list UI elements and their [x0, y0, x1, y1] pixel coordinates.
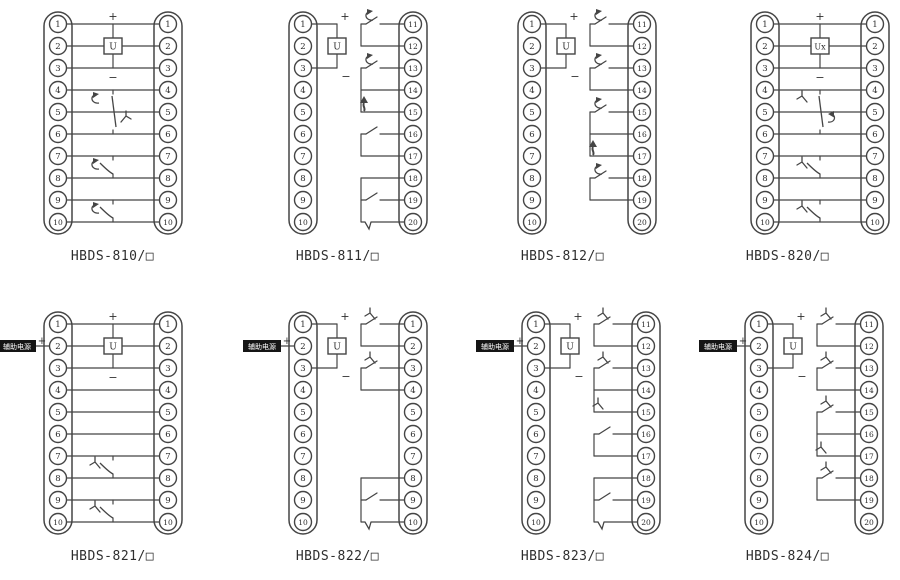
terminal-number: 5: [756, 408, 761, 418]
contact-blade: [822, 361, 833, 368]
reset-arrow-icon: [596, 9, 602, 15]
terminal-number: 16: [408, 130, 418, 139]
minus-sign: −: [341, 70, 350, 83]
terminal-number: 1: [165, 20, 170, 30]
terminal-number: 4: [410, 386, 415, 396]
terminal-number: 19: [408, 196, 418, 205]
terminal-number: 8: [872, 174, 877, 184]
terminal-number: 1: [756, 320, 761, 330]
plus-sign: +: [38, 336, 46, 347]
terminal-number: 20: [637, 218, 647, 227]
terminal-number: 6: [165, 130, 170, 140]
contact-blade: [366, 193, 377, 200]
reset-arrow-icon: [596, 163, 602, 169]
terminal-number: 8: [410, 474, 415, 484]
terminal-number: 7: [533, 452, 538, 462]
fork-icon: [821, 308, 831, 319]
terminal-number: 4: [756, 386, 761, 396]
minus-sign: −: [570, 70, 579, 83]
reset-arrow-icon: [93, 158, 99, 164]
diagram-title: HBDS-820/□: [675, 249, 900, 264]
terminal-number: 2: [55, 342, 60, 352]
aux-label-text: 辅助电源: [3, 342, 31, 351]
fork-icon: [821, 396, 831, 407]
terminal-number: 10: [527, 218, 537, 227]
terminal-number: 6: [300, 130, 305, 140]
plus-sign: +: [796, 310, 805, 323]
terminal-number: 9: [529, 196, 534, 206]
terminal-number: 1: [872, 20, 877, 30]
terminal-number: 13: [641, 364, 651, 373]
terminal-number: 14: [637, 86, 647, 95]
terminal-number: 7: [762, 152, 767, 162]
terminal-number: 2: [872, 42, 877, 52]
terminal-number: 8: [762, 174, 767, 184]
diagram-hbds-820: Ux+−1122334455667788991010 HBDS-820/□: [675, 0, 900, 290]
terminal-number: 17: [641, 452, 651, 461]
coil-label: U: [109, 343, 117, 353]
fork-icon: [797, 201, 807, 212]
terminal-number: 9: [533, 496, 538, 506]
fork-icon: [598, 352, 608, 363]
nc-hook-blade: [594, 522, 604, 529]
terminal-number: 20: [408, 218, 418, 227]
terminal-number: 5: [300, 108, 305, 118]
coil-label: U: [562, 43, 570, 53]
reset-arrow-icon: [93, 92, 99, 98]
terminal-number: 6: [55, 130, 60, 140]
terminal-number: 11: [408, 20, 418, 29]
coil-label: Ux: [814, 43, 826, 52]
terminal-number: 16: [641, 430, 651, 439]
terminal-number: 12: [641, 342, 651, 351]
terminal-number: 7: [410, 452, 415, 462]
terminal-number: 2: [165, 42, 170, 52]
terminal-number: 11: [637, 20, 647, 29]
minus-sign: −: [574, 370, 583, 383]
contact-blade: [599, 317, 610, 324]
terminal-number: 13: [637, 64, 647, 73]
terminal-number: 3: [300, 364, 305, 374]
terminal-number: 2: [529, 42, 534, 52]
terminal-number: 10: [754, 518, 764, 527]
terminal-number: 3: [300, 64, 305, 74]
terminal-number: 9: [165, 496, 170, 506]
diagram-title: HBDS-821/□: [0, 549, 225, 564]
diagram-hbds-820-svg: Ux+−1122334455667788991010: [675, 6, 900, 246]
diagram-hbds-822: U+−1122334455667788991010辅助电源+ HBDS-822/…: [225, 290, 450, 580]
plus-sign: +: [739, 336, 747, 347]
fork-icon: [90, 457, 100, 468]
fork-icon: [121, 111, 131, 122]
terminal-number: 11: [864, 320, 874, 329]
nc-hook-blade: [361, 522, 371, 529]
terminal-number: 19: [641, 496, 651, 505]
terminal-number: 18: [637, 174, 647, 183]
minus-sign: −: [341, 370, 350, 383]
terminal-number: 14: [408, 86, 418, 95]
terminal-number: 2: [300, 42, 305, 52]
reset-arrow-icon: [367, 9, 373, 15]
terminal-number: 12: [864, 342, 874, 351]
minus-sign: −: [797, 370, 806, 383]
aux-label-text: 辅助电源: [704, 342, 732, 351]
terminal-number: 9: [872, 196, 877, 206]
terminal-number: 4: [55, 86, 60, 96]
reset-arrow-icon: [596, 53, 602, 59]
terminal-number: 2: [533, 342, 538, 352]
terminal-number: 5: [529, 108, 534, 118]
contact-blade: [599, 493, 610, 500]
terminal-number: 10: [408, 518, 418, 527]
terminal-number: 4: [529, 86, 534, 96]
contact-blade: [366, 493, 377, 500]
fork-icon: [821, 462, 831, 473]
contact-blade: [599, 427, 610, 434]
terminal-number: 1: [529, 20, 534, 30]
terminal-number: 9: [762, 196, 767, 206]
diagram-hbds-811-svg: U+−1112123134145156167178189191020: [225, 6, 450, 246]
plus-sign: +: [340, 310, 349, 323]
diagram-hbds-821-svg: U+−1122334455667788991010辅助电源+: [0, 306, 225, 546]
diagram-hbds-810-svg: U+−1122334455667788991010: [0, 6, 225, 246]
terminal-number: 5: [165, 408, 170, 418]
terminal-number: 10: [53, 218, 63, 227]
terminal-number: 7: [300, 152, 305, 162]
reset-arrow-icon: [596, 97, 602, 103]
terminal-number: 6: [300, 430, 305, 440]
aux-label-text: 辅助电源: [481, 342, 509, 351]
terminal-number: 10: [163, 518, 173, 527]
coil-label: U: [333, 343, 341, 353]
terminal-number: 7: [165, 452, 170, 462]
terminal-number: 19: [637, 196, 647, 205]
minus-sign: −: [815, 71, 824, 84]
diagram-hbds-824: U+−1112123134145156167178189191020辅助电源+ …: [675, 290, 900, 580]
terminal-number: 6: [756, 430, 761, 440]
terminal-number: 7: [529, 152, 534, 162]
contact-blade: [366, 361, 377, 368]
terminal-number: 5: [533, 408, 538, 418]
terminal-number: 14: [864, 386, 874, 395]
terminal-number: 2: [165, 342, 170, 352]
terminal-number: 17: [864, 452, 874, 461]
diagram-title: HBDS-822/□: [225, 549, 450, 564]
terminal-number: 17: [637, 152, 647, 161]
terminal-number: 19: [864, 496, 874, 505]
terminal-number: 1: [300, 320, 305, 330]
terminal-number: 8: [529, 174, 534, 184]
coil-label: U: [109, 43, 117, 53]
nc-hook-blade: [361, 222, 371, 229]
terminal-number: 7: [165, 152, 170, 162]
fork-icon: [797, 91, 807, 102]
plus-sign: +: [340, 10, 349, 23]
diagram-grid: U+−1122334455667788991010 HBDS-810/□ U+−…: [0, 0, 900, 580]
terminal-number: 4: [165, 386, 170, 396]
terminal-number: 3: [756, 364, 761, 374]
terminal-number: 3: [762, 64, 767, 74]
terminal-number: 7: [872, 152, 877, 162]
terminal-number: 7: [55, 452, 60, 462]
terminal-number: 2: [762, 42, 767, 52]
terminal-number: 4: [55, 386, 60, 396]
terminal-number: 8: [55, 474, 60, 484]
terminal-number: 6: [529, 130, 534, 140]
terminal-number: 8: [300, 474, 305, 484]
plus-sign: +: [815, 10, 824, 23]
terminal-number: 20: [641, 518, 651, 527]
minus-sign: −: [108, 71, 117, 84]
terminal-number: 1: [55, 20, 60, 30]
terminal-number: 11: [641, 320, 651, 329]
terminal-number: 12: [408, 42, 418, 51]
contact-blade: [599, 361, 610, 368]
coil-label: U: [789, 343, 797, 353]
terminal-number: 7: [300, 452, 305, 462]
terminal-number: 5: [410, 408, 415, 418]
plus-sign: +: [108, 10, 117, 23]
terminal-number: 1: [300, 20, 305, 30]
diagram-hbds-812-svg: U+−1112123134145156167178189191020: [450, 6, 675, 246]
terminal-number: 1: [55, 320, 60, 330]
terminal-number: 4: [533, 386, 538, 396]
contact-blade: [822, 471, 833, 478]
terminal-number: 18: [864, 474, 874, 483]
terminal-number: 10: [53, 518, 63, 527]
contact-blade: [100, 207, 113, 218]
diagram-hbds-811: U+−1112123134145156167178189191020 HBDS-…: [225, 0, 450, 290]
terminal-number: 8: [756, 474, 761, 484]
terminal-number: 3: [55, 64, 60, 74]
terminal-number: 1: [410, 320, 415, 330]
fork-icon: [365, 352, 375, 363]
diagram-hbds-821: U+−1122334455667788991010辅助电源+ HBDS-821/…: [0, 290, 225, 580]
terminal-number: 10: [870, 218, 880, 227]
terminal-number: 4: [165, 86, 170, 96]
terminal-number: 3: [872, 64, 877, 74]
terminal-number: 6: [55, 430, 60, 440]
terminal-number: 5: [872, 108, 877, 118]
terminal-number: 2: [756, 342, 761, 352]
terminal-number: 4: [872, 86, 877, 96]
diagram-hbds-812: U+−1112123134145156167178189191020 HBDS-…: [450, 0, 675, 290]
plus-sign: +: [516, 336, 524, 347]
terminal-number: 5: [165, 108, 170, 118]
terminal-number: 18: [641, 474, 651, 483]
fork-icon: [598, 308, 608, 319]
plus-sign: +: [108, 310, 117, 323]
plus-sign: +: [283, 336, 291, 347]
diagram-hbds-810: U+−1122334455667788991010 HBDS-810/□: [0, 0, 225, 290]
terminal-number: 4: [762, 86, 767, 96]
terminal-number: 7: [756, 452, 761, 462]
terminal-number: 8: [300, 174, 305, 184]
terminal-number: 3: [529, 64, 534, 74]
contact-blade: [366, 127, 377, 134]
terminal-number: 9: [55, 496, 60, 506]
diagram-hbds-823: U+−1112123134145156167178189191020辅助电源+ …: [450, 290, 675, 580]
terminal-number: 3: [533, 364, 538, 374]
terminal-number: 9: [165, 196, 170, 206]
terminal-number: 2: [55, 42, 60, 52]
diagram-hbds-822-svg: U+−1122334455667788991010辅助电源+: [225, 306, 450, 546]
fork-icon: [797, 157, 807, 168]
terminal-number: 9: [410, 496, 415, 506]
terminal-number: 8: [165, 474, 170, 484]
terminal-number: 13: [408, 64, 418, 73]
terminal-number: 6: [410, 430, 415, 440]
contact-blade: [100, 507, 113, 518]
terminal-number: 8: [533, 474, 538, 484]
terminal-number: 14: [641, 386, 651, 395]
minus-sign: −: [108, 371, 117, 384]
terminal-number: 15: [637, 108, 647, 117]
contact-blade: [822, 317, 833, 324]
terminal-number: 12: [637, 42, 647, 51]
terminal-number: 6: [533, 430, 538, 440]
fork-icon: [821, 352, 831, 363]
terminal-number: 3: [410, 364, 415, 374]
contact-blade: [100, 163, 113, 174]
terminal-number: 5: [300, 408, 305, 418]
terminal-number: 18: [408, 174, 418, 183]
terminal-number: 6: [872, 130, 877, 140]
plus-sign: +: [569, 10, 578, 23]
coil-label: U: [333, 43, 341, 53]
arrow-icon: [592, 147, 593, 155]
contact-blade: [807, 163, 820, 174]
terminal-number: 4: [300, 386, 305, 396]
diagram-title: HBDS-811/□: [225, 249, 450, 264]
terminal-number: 3: [165, 364, 170, 374]
terminal-number: 15: [864, 408, 874, 417]
terminal-number: 10: [298, 218, 308, 227]
terminal-number: 9: [300, 496, 305, 506]
contact-blade: [807, 207, 820, 218]
terminal-number: 10: [298, 518, 308, 527]
terminal-number: 1: [165, 320, 170, 330]
terminal-number: 3: [165, 64, 170, 74]
terminal-number: 15: [408, 108, 418, 117]
aux-label-text: 辅助电源: [248, 342, 276, 351]
terminal-number: 9: [300, 196, 305, 206]
terminal-number: 10: [163, 218, 173, 227]
terminal-number: 9: [756, 496, 761, 506]
diagram-title: HBDS-810/□: [0, 249, 225, 264]
terminal-number: 1: [533, 320, 538, 330]
contact-blade: [822, 405, 833, 412]
terminal-number: 16: [864, 430, 874, 439]
diagram-title: HBDS-823/□: [450, 549, 675, 564]
diagram-hbds-823-svg: U+−1112123134145156167178189191020辅助电源+: [450, 306, 675, 546]
terminal-number: 17: [408, 152, 418, 161]
terminal-number: 5: [55, 408, 60, 418]
terminal-number: 20: [864, 518, 874, 527]
diagram-title: HBDS-824/□: [675, 549, 900, 564]
terminal-number: 5: [762, 108, 767, 118]
terminal-number: 4: [300, 86, 305, 96]
diagram-hbds-824-svg: U+−1112123134145156167178189191020辅助电源+: [675, 306, 900, 546]
terminal-number: 10: [760, 218, 770, 227]
terminal-number: 6: [762, 130, 767, 140]
terminal-number: 6: [165, 430, 170, 440]
terminal-number: 8: [55, 174, 60, 184]
terminal-number: 3: [55, 364, 60, 374]
terminal-number: 1: [762, 20, 767, 30]
plus-sign: +: [573, 310, 582, 323]
fork-icon: [365, 308, 375, 319]
arrow-icon: [363, 103, 364, 111]
contact-blade: [100, 463, 113, 474]
diagram-title: HBDS-812/□: [450, 249, 675, 264]
terminal-number: 8: [165, 174, 170, 184]
reset-arrow-icon: [93, 202, 99, 208]
terminal-number: 16: [637, 130, 647, 139]
terminal-number: 9: [55, 196, 60, 206]
contact-blade: [366, 317, 377, 324]
terminal-number: 2: [410, 342, 415, 352]
coil-label: U: [566, 343, 574, 353]
fork-icon: [90, 501, 100, 512]
terminal-number: 13: [864, 364, 874, 373]
terminal-number: 7: [55, 152, 60, 162]
reset-arrow-icon: [367, 53, 373, 59]
terminal-number: 10: [531, 518, 541, 527]
terminal-number: 15: [641, 408, 651, 417]
terminal-number: 2: [300, 342, 305, 352]
terminal-number: 5: [55, 108, 60, 118]
